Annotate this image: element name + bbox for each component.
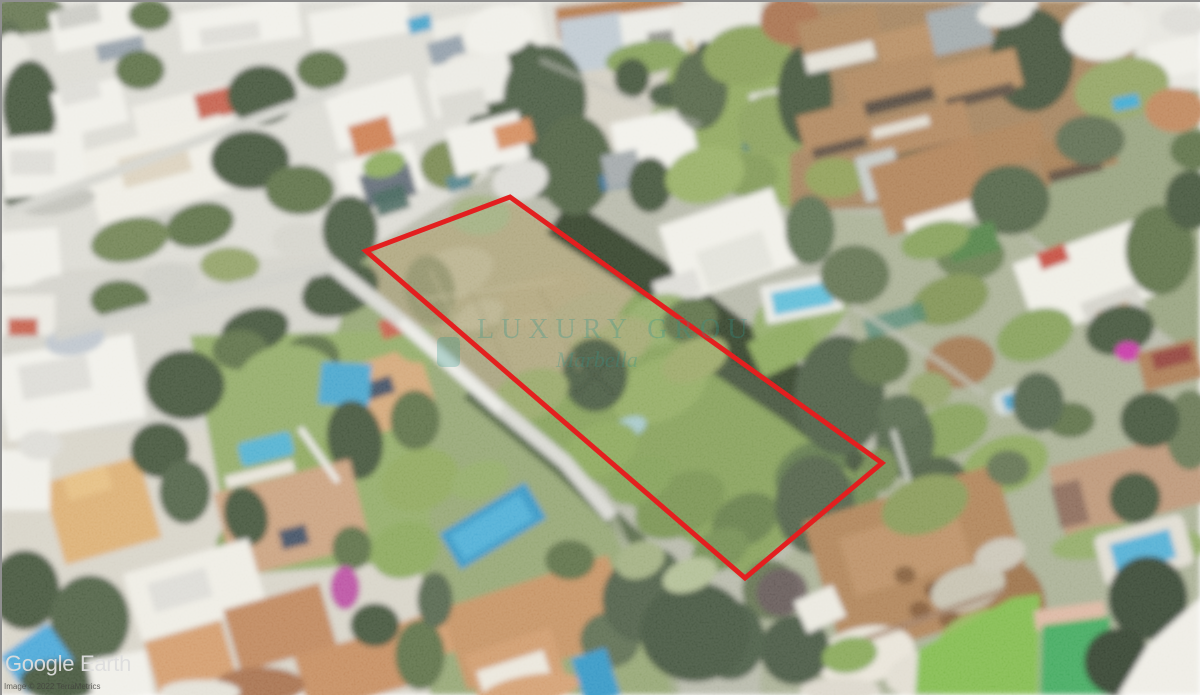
- svg-text:Google Earth: Google Earth: [5, 651, 131, 676]
- svg-text:Marbella: Marbella: [555, 347, 638, 372]
- svg-text:Image © 2022 TerraMetrics: Image © 2022 TerraMetrics: [4, 682, 100, 691]
- svg-text:LUXURY GROU: LUXURY GROU: [477, 314, 754, 345]
